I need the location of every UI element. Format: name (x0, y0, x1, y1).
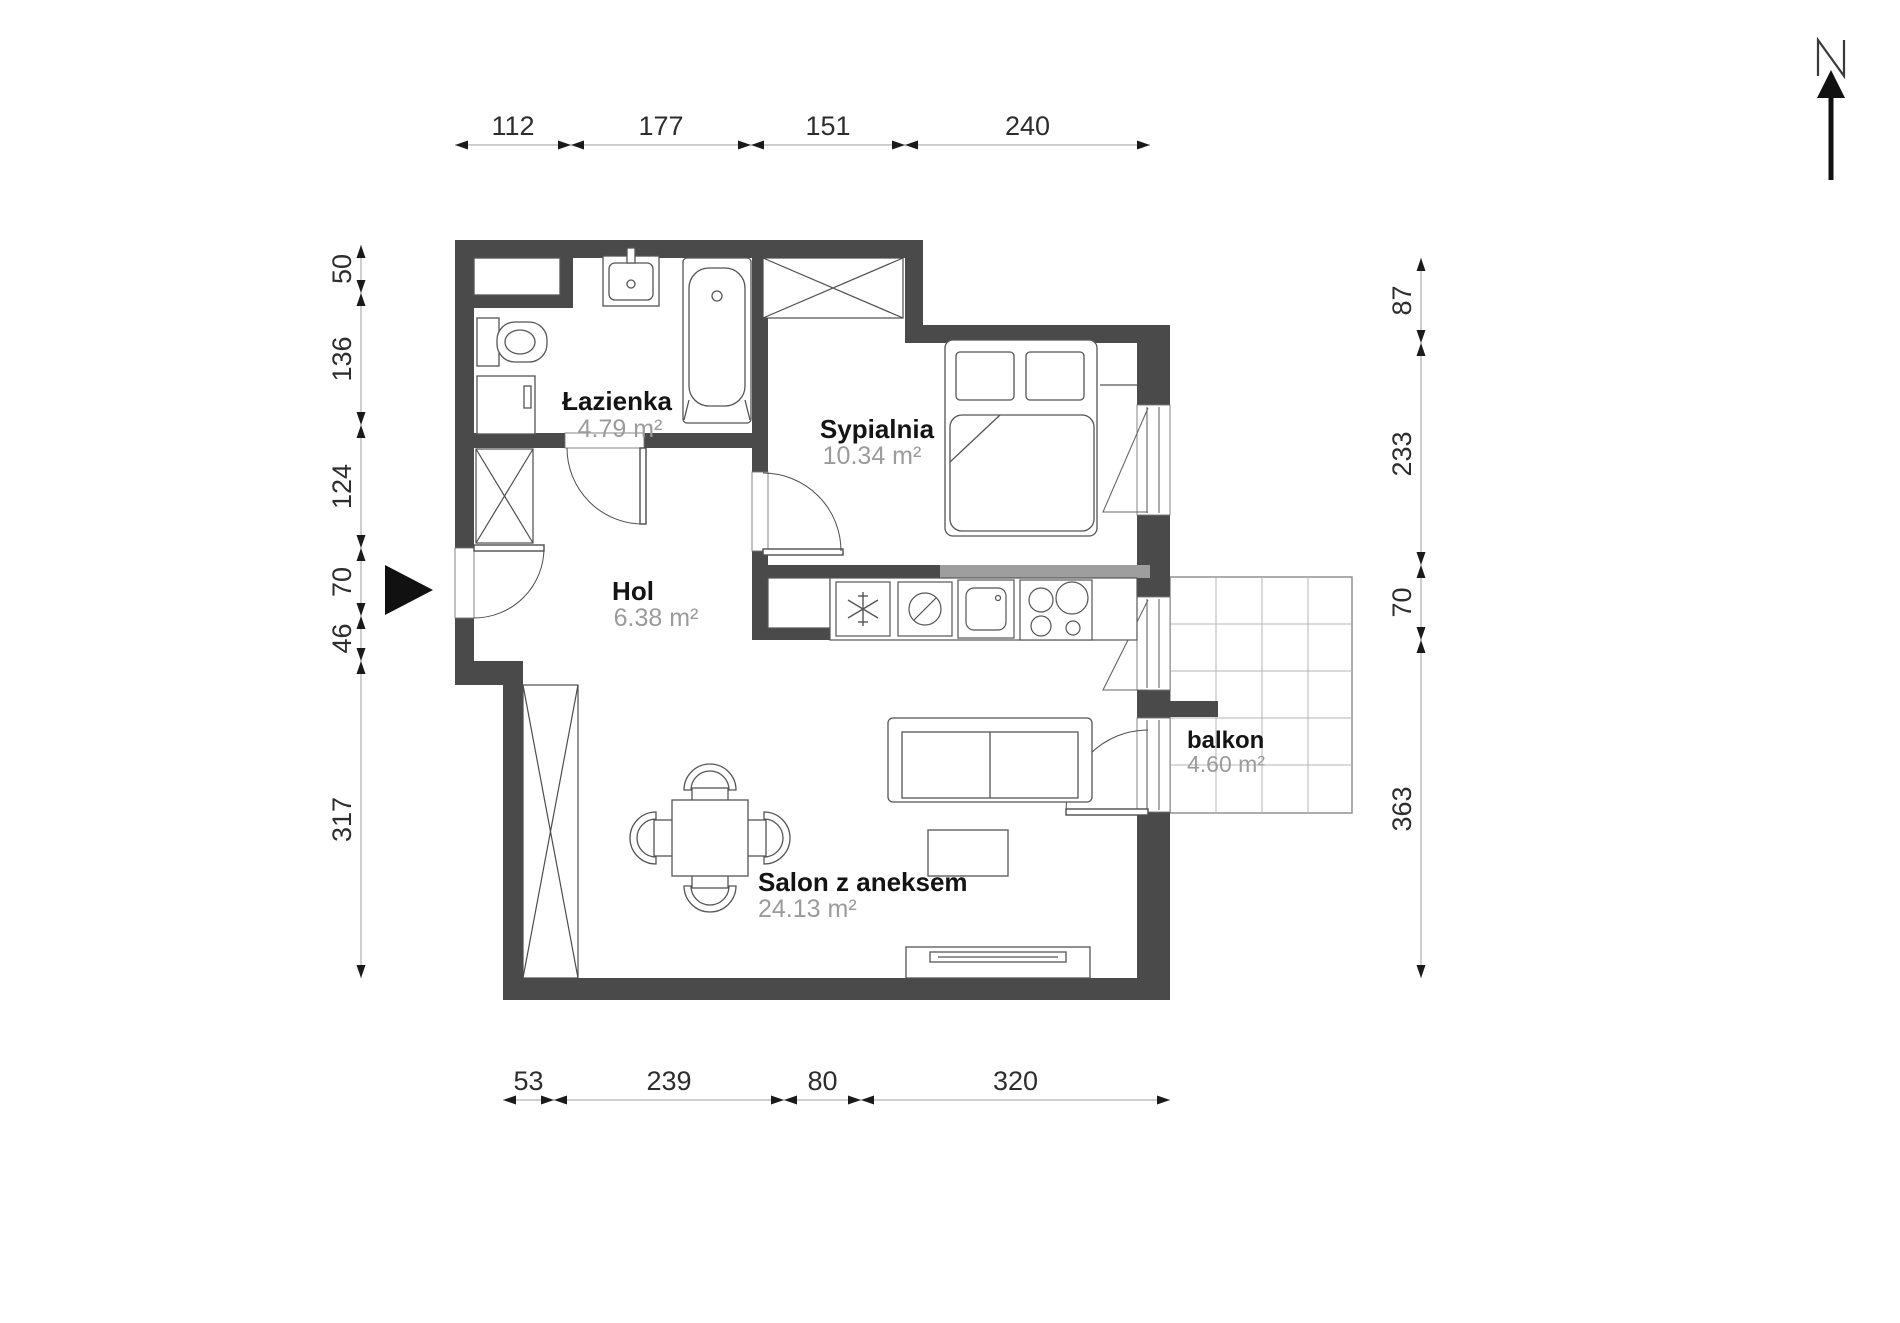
room-area-sypialnia: 10.34 m² (823, 442, 922, 470)
balcony-door-leaf (1066, 809, 1148, 815)
salon-furniture (630, 718, 1092, 978)
room-label-hol: Hol (612, 576, 654, 606)
dimension-chain-top: 112177151240 (455, 111, 1150, 150)
dim-arrow (751, 141, 764, 150)
entrance-arrow-icon (385, 565, 433, 615)
dim-arrow (1417, 965, 1426, 978)
dim-arrow (861, 1096, 874, 1105)
room-area-hol: 6.38 m² (614, 604, 699, 632)
dim-label: 239 (646, 1066, 691, 1096)
dim-arrow (357, 661, 366, 674)
kitchen-sink-icon (958, 580, 1014, 638)
dim-arrow (738, 141, 751, 150)
dim-label: 363 (1387, 786, 1417, 831)
wall-segment (752, 551, 768, 640)
dim-arrow (357, 548, 366, 561)
room-label-sypialnia: Sypialnia (820, 414, 935, 444)
dim-arrow (357, 616, 366, 629)
dim-arrow (357, 412, 366, 425)
wall-segment (455, 295, 573, 308)
wall-segment (455, 661, 523, 685)
dim-label: 320 (993, 1066, 1038, 1096)
bedroom-door-swing (763, 473, 841, 551)
room-label-salon: Salon z aneksem (758, 867, 968, 897)
dim-arrow (357, 648, 366, 661)
wall-segment (455, 433, 565, 448)
room-area-lazienka: 4.79 m² (578, 415, 663, 443)
entrance-door-leaf (474, 545, 544, 551)
room-label-balkon: balkon (1187, 727, 1264, 754)
north-arrow-icon: N (0, 0, 1845, 180)
balcony-tile-grid (1170, 577, 1352, 813)
dim-arrow (357, 245, 366, 258)
dim-arrow (357, 603, 366, 616)
bathroom-door-swing (567, 448, 643, 524)
bedroom-door-leaf (763, 549, 843, 555)
dim-arrow (455, 141, 468, 150)
hol-wardrobe-icon (476, 449, 533, 543)
toilet-icon (477, 318, 547, 366)
wall-segment (644, 433, 768, 448)
dim-label: 177 (638, 111, 683, 141)
wall-segment (503, 685, 523, 978)
wall-segment (1137, 515, 1170, 597)
wall-segment (560, 258, 573, 295)
dim-arrow (1417, 258, 1426, 271)
floor-plan-page: Łazienka 4.79 m² Sypialnia 10.34 m² Hol … (0, 0, 1900, 1323)
sink-icon (603, 248, 659, 306)
dim-arrow (357, 280, 366, 293)
dim-arrow (784, 1096, 797, 1105)
dim-label: 240 (1005, 111, 1050, 141)
wall-segment (1137, 812, 1170, 978)
shaft-niche (474, 258, 560, 295)
dim-label: 112 (491, 111, 534, 141)
balcony-doorway (1137, 718, 1170, 812)
dim-arrow (571, 141, 584, 150)
entrance-doorway (455, 548, 474, 618)
dim-arrow (357, 535, 366, 548)
room-label-lazienka: Łazienka (562, 386, 672, 416)
dim-label: 124 (327, 464, 357, 509)
dishwasher-icon (898, 582, 952, 636)
dim-arrow (541, 1096, 554, 1105)
dim-arrow (1417, 565, 1426, 578)
dim-label: 87 (1387, 285, 1417, 315)
bed-icon (945, 340, 1137, 536)
bedroom-wardrobe-icon (763, 258, 903, 318)
dim-label: 53 (513, 1066, 543, 1096)
balcony (1170, 577, 1352, 813)
dining-table (672, 800, 748, 876)
floor-plan-canvas: Łazienka 4.79 m² Sypialnia 10.34 m² Hol … (0, 0, 1900, 1323)
dimension-chain-right: 8723370363 (1387, 258, 1426, 978)
dim-arrow (1137, 141, 1150, 150)
dim-label: 317 (327, 797, 357, 842)
dim-arrow (892, 141, 905, 150)
dim-arrow (1417, 627, 1426, 640)
bedroom-doorway (752, 472, 768, 551)
bathroom-door-leaf (640, 448, 646, 524)
dim-arrow (554, 1096, 567, 1105)
wall-segment (503, 978, 1170, 1000)
wall-segment-light (940, 565, 1150, 578)
duvet (950, 415, 1094, 531)
wall-segment (455, 240, 923, 258)
balcony-outline (1170, 577, 1352, 813)
wall-segment (752, 628, 830, 640)
dim-arrow (503, 1096, 516, 1105)
washing-machine-icon (477, 376, 535, 434)
wall-pier (1170, 701, 1218, 717)
room-area-salon: 24.13 m² (758, 895, 857, 923)
pillow (956, 352, 1014, 400)
dim-arrow (771, 1096, 784, 1105)
stove-icon (1020, 580, 1092, 640)
kitchen-shaft-box (768, 578, 830, 628)
dim-arrow (905, 141, 918, 150)
dim-arrow (357, 425, 366, 438)
dim-arrow (1417, 343, 1426, 356)
dim-label: 233 (1387, 431, 1417, 476)
wall-segment (1137, 690, 1170, 718)
tv-cabinet-icon (906, 947, 1090, 978)
dim-label: 70 (1387, 587, 1417, 617)
dim-arrow (1417, 330, 1426, 343)
dim-label: 70 (327, 567, 357, 597)
dim-arrow (848, 1096, 861, 1105)
dim-label: 136 (327, 336, 357, 381)
dimension-chain-bottom: 5323980320 (503, 1066, 1170, 1105)
wall-segment (455, 618, 474, 661)
wall-segment (752, 565, 940, 578)
pillow (1026, 352, 1084, 400)
dimension-chain-left: 501361247046317 (327, 245, 366, 978)
room-area-balkon: 4.60 m² (1187, 751, 1265, 777)
dim-arrow (1417, 552, 1426, 565)
sofa-icon (888, 718, 1092, 802)
dim-label: 50 (327, 254, 357, 284)
dim-label: 151 (805, 111, 850, 141)
dim-arrow (357, 293, 366, 306)
dim-arrow (1417, 640, 1426, 653)
fridge-icon (836, 582, 890, 636)
salon-wardrobe-icon (523, 685, 578, 978)
dim-label: 46 (327, 623, 357, 653)
entrance-door-swing (474, 548, 544, 618)
dim-arrow (357, 965, 366, 978)
dim-label: 80 (807, 1066, 837, 1096)
wall-segment (455, 240, 474, 548)
bathtub-icon (683, 258, 751, 423)
dim-arrow (558, 141, 571, 150)
dim-arrow (1157, 1096, 1170, 1105)
wall-segment (1137, 343, 1170, 405)
